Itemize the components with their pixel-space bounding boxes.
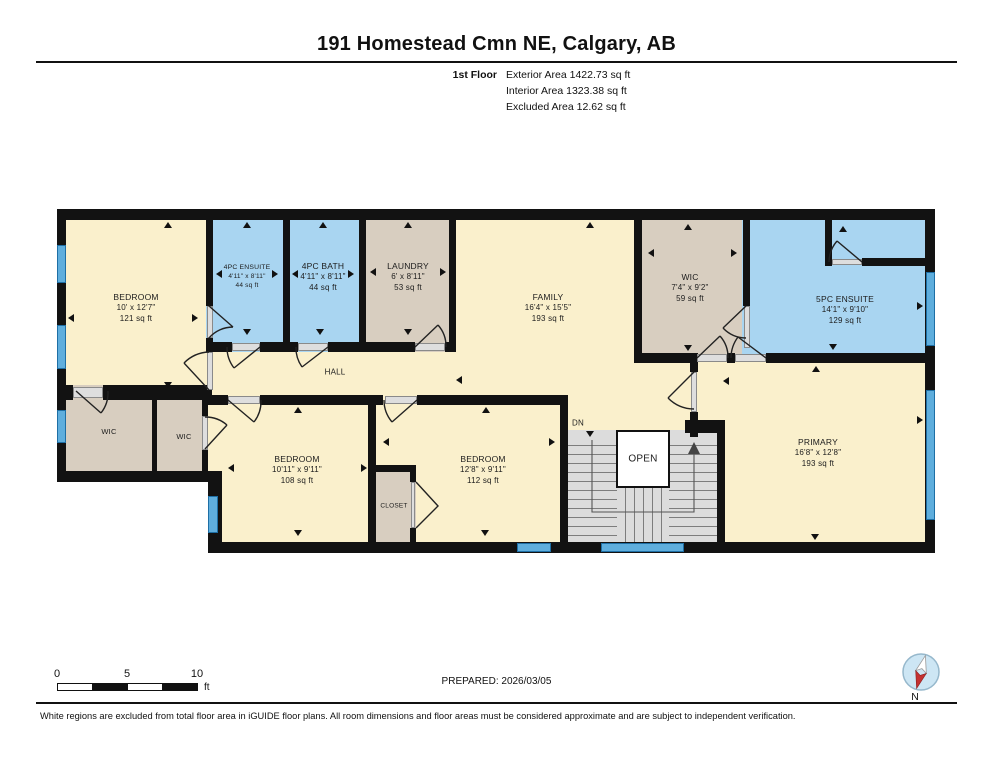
room-label-family: FAMILY 16'4" x 15'5" 193 sq ft: [525, 292, 571, 324]
camera-arrow-icon: [294, 530, 302, 536]
room-label-wic-main: WIC 7'4" x 9'2" 59 sq ft: [671, 272, 708, 304]
camera-arrow-icon: [361, 464, 367, 472]
camera-arrow-icon: [586, 222, 594, 228]
camera-arrow-icon: [481, 530, 489, 536]
camera-arrow-icon: [440, 268, 446, 276]
room-label-wic-a: WIC: [101, 427, 116, 437]
doors-layer: [0, 0, 993, 768]
room-label-bedroom3: BEDROOM 12'8" x 9'11" 112 sq ft: [460, 454, 506, 486]
room-label-laundry: LAUNDRY 6' x 8'11" 53 sq ft: [387, 261, 429, 293]
camera-arrow-icon: [216, 270, 222, 278]
camera-arrow-icon: [839, 226, 847, 232]
camera-arrow-icon: [404, 329, 412, 335]
camera-arrow-icon: [404, 222, 412, 228]
camera-arrow-icon: [482, 407, 490, 413]
camera-arrow-icon: [164, 222, 172, 228]
camera-arrow-icon: [917, 302, 923, 310]
camera-arrow-icon: [812, 366, 820, 372]
camera-arrow-icon: [316, 329, 324, 335]
footer-divider: [36, 702, 957, 704]
room-label-hall: HALL: [325, 368, 346, 379]
stair-open-label: OPEN: [628, 452, 657, 465]
room-label-4pc-bath: 4PC BATH 4'11" x 8'11" 44 sq ft: [300, 261, 345, 293]
camera-arrow-icon: [456, 376, 462, 384]
camera-arrow-icon: [648, 249, 654, 257]
disclaimer: White regions are excluded from total fl…: [40, 711, 960, 721]
camera-arrow-icon: [348, 270, 354, 278]
compass-icon: [899, 650, 943, 694]
camera-arrow-icon: [164, 382, 172, 388]
camera-arrow-icon: [319, 222, 327, 228]
camera-arrow-icon: [549, 438, 555, 446]
camera-arrow-icon: [192, 314, 198, 322]
camera-arrow-icon: [243, 222, 251, 228]
camera-arrow-icon: [829, 344, 837, 350]
room-label-primary: PRIMARY 16'8" x 12'8" 193 sq ft: [795, 437, 841, 469]
camera-arrow-icon: [228, 464, 234, 472]
camera-arrow-icon: [917, 416, 923, 424]
camera-arrow-icon: [723, 377, 729, 385]
camera-arrow-icon: [68, 314, 74, 322]
stair-dn-label: DN: [572, 419, 584, 430]
camera-arrow-icon: [370, 268, 376, 276]
room-label-bedroom1: BEDROOM 10' x 12'7" 121 sq ft: [113, 292, 158, 324]
camera-arrow-icon: [292, 270, 298, 278]
camera-arrow-icon: [811, 534, 819, 540]
room-label-5pc-ensuite: 5PC ENSUITE 14'1" x 9'10" 129 sq ft: [816, 294, 874, 326]
camera-arrow-icon: [243, 329, 251, 335]
room-label-wic-b: WIC: [176, 432, 191, 442]
camera-arrow-icon: [684, 224, 692, 230]
camera-arrow-icon: [383, 438, 389, 446]
camera-arrow-icon: [684, 345, 692, 351]
camera-arrow-icon: [272, 270, 278, 278]
room-label-bedroom2: BEDROOM 10'11" x 9'11" 108 sq ft: [272, 454, 322, 486]
camera-arrow-icon: [731, 249, 737, 257]
camera-arrow-icon: [294, 407, 302, 413]
stair-up-arrow-icon: [688, 442, 700, 454]
prepared-date: PREPARED: 2026/03/05: [0, 676, 993, 687]
camera-arrow-icon: [586, 431, 594, 437]
room-label-closet: CLOSET: [380, 503, 407, 512]
room-label-4pc-ensuite: 4PC ENSUITE 4'11" x 8'11" 44 sq ft: [224, 264, 271, 290]
